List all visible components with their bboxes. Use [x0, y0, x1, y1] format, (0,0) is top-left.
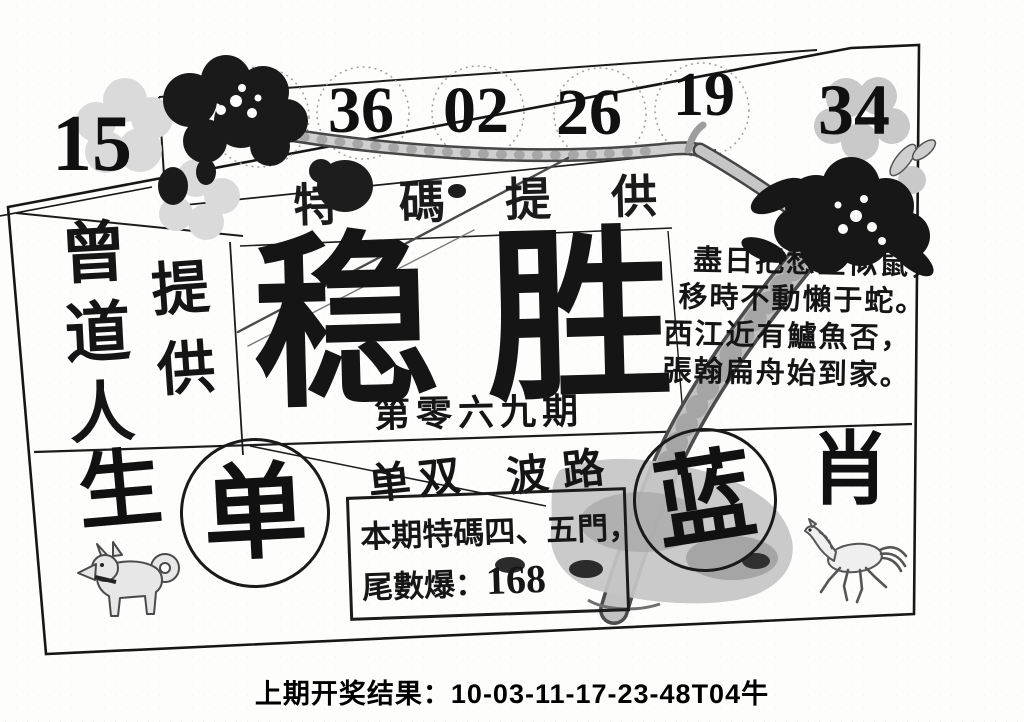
special-number-2: 36: [328, 78, 394, 144]
poem-line-1: 盡日把愁全似鼠，: [665, 241, 942, 284]
xiao-char: 肖: [810, 430, 890, 510]
odd-circle-char: 单: [200, 458, 309, 567]
special-number-3: 02: [443, 78, 509, 144]
previous-draw-value: 10-03-11-17-23-48T04牛: [451, 679, 769, 709]
poem-line-4: 張翰扁舟始到家。: [662, 352, 939, 395]
poem-line-3: 西江近有鱸魚否，: [663, 315, 940, 358]
horse-figure: [798, 514, 912, 608]
special-number-1: 44: [221, 75, 293, 147]
tip-box: 本期特碼四、五門， 尾數爆：168: [346, 487, 630, 621]
poem-block: 盡日把愁全似鼠， 移時不動懶于蛇。 西江近有鱸魚否， 張翰扁舟始到家。: [662, 241, 941, 395]
blue-circle-char: 蓝: [648, 443, 762, 557]
previous-draw-label: 上期开奖结果：: [255, 679, 451, 709]
tip-line-2: 尾數爆：168: [361, 555, 547, 608]
lottery-tip-sheet: 15 44 36 02 26 19 34 特碼提供 曾道人 提供 稳胜 第零六九…: [0, 0, 1024, 722]
tip-line-1: 本期特碼四、五門，: [359, 502, 639, 557]
special-number-4: 26: [556, 80, 622, 146]
sheng-char: 生: [74, 444, 165, 535]
tip-line-2-value: 168: [485, 556, 547, 603]
special-number-left: 15: [52, 104, 132, 184]
provide-column: 提供: [142, 256, 215, 420]
provider-name-column: 曾道人: [52, 216, 134, 459]
poem-line-2: 移時不動懶于蛇。: [664, 278, 941, 321]
dog-figure: [68, 530, 192, 628]
previous-draw-result: 上期开奖结果：10-03-11-17-23-48T04牛: [0, 672, 1024, 711]
special-number-right: 34: [818, 74, 890, 146]
special-number-5: 19: [673, 64, 735, 126]
tip-line-2-label: 尾數爆：: [361, 566, 486, 605]
issue-number: 第零六九期: [374, 382, 585, 438]
